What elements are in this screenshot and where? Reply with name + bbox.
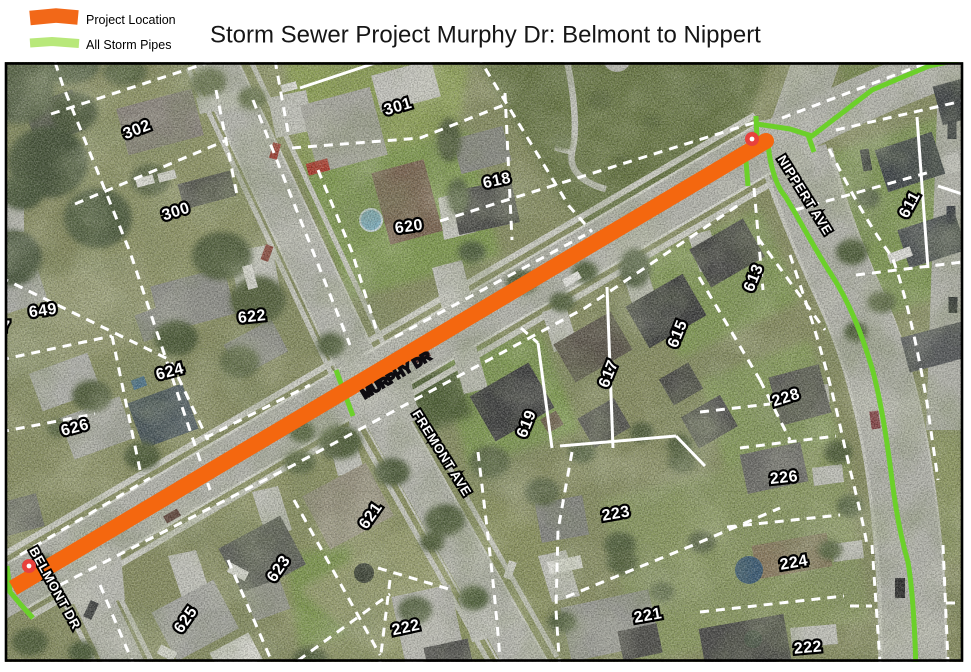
svg-text:622: 622 xyxy=(237,307,267,327)
svg-text:Storm Sewer Project Murphy Dr:: Storm Sewer Project Murphy Dr: Belmont t… xyxy=(210,22,761,49)
svg-text:Project Location: Project Location xyxy=(86,13,176,27)
svg-text:All Storm Pipes: All Storm Pipes xyxy=(86,38,171,52)
svg-text:222: 222 xyxy=(793,638,823,657)
svg-text:226: 226 xyxy=(769,468,799,488)
